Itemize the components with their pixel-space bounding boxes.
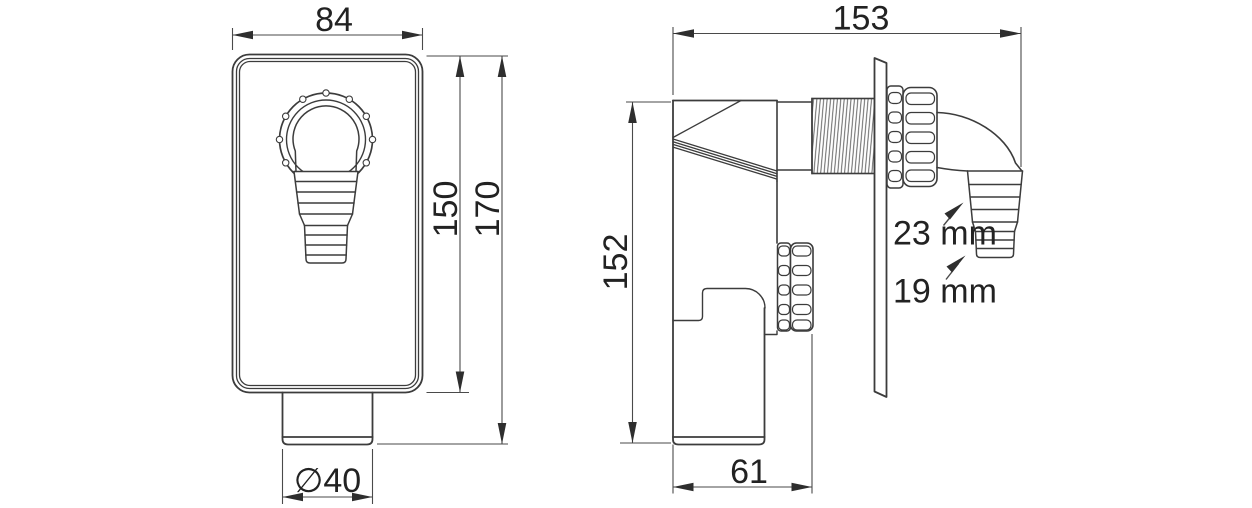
callout-19mm: 19 mm: [893, 256, 997, 311]
dim-170-label: 170: [469, 181, 507, 238]
dim-153-label: 153: [833, 0, 890, 38]
outlet-pipe-front: [283, 393, 373, 445]
front-view: 84 150 170 ∅40: [233, 1, 509, 504]
spigot-inner-opening: [293, 106, 359, 172]
dim-61: 61: [673, 334, 812, 494]
elbow: [937, 113, 1022, 172]
collar: [777, 99, 812, 174]
callout-19mm-label: 19 mm: [893, 273, 997, 311]
locknut-side-upper: [887, 86, 937, 188]
dim-84-label: 84: [315, 1, 353, 39]
dim-61-label: 61: [730, 453, 768, 491]
callout-19mm-arrow: [947, 256, 966, 273]
dim-152-label: 152: [597, 234, 635, 291]
locknut-side-lower: [778, 243, 814, 331]
dim-diameter-40-label: ∅40: [294, 462, 361, 500]
dim-84: 84: [233, 1, 423, 50]
cone-edge: [673, 101, 741, 138]
wall-plate-side: [875, 58, 887, 397]
dim-150-label: 150: [427, 181, 465, 238]
trap-inner-contour: [673, 289, 765, 321]
locknut-mid-circle: [287, 100, 366, 179]
outlet-pipe-cap: [283, 437, 373, 445]
locknut-grip-notches: [276, 90, 375, 166]
outlet-pipe-side-cap: [673, 437, 765, 445]
dim-152: 152: [597, 102, 671, 443]
callout-23mm-label: 23 mm: [893, 215, 997, 253]
cone-seal-hatch: [673, 139, 777, 179]
dim-diameter-40: ∅40: [283, 449, 373, 504]
nut-under-step: [765, 331, 778, 335]
spigot-silhouette: [294, 172, 358, 264]
technical-drawing-canvas: 84 150 170 ∅40: [0, 0, 1252, 508]
trap-dimension-drawing: 84 150 170 ∅40: [0, 0, 1252, 508]
pipe-thread: [812, 99, 875, 174]
side-view: 153 152 61 23 mm 19 mm: [597, 0, 1023, 494]
hose-spigot-front: [293, 106, 359, 263]
